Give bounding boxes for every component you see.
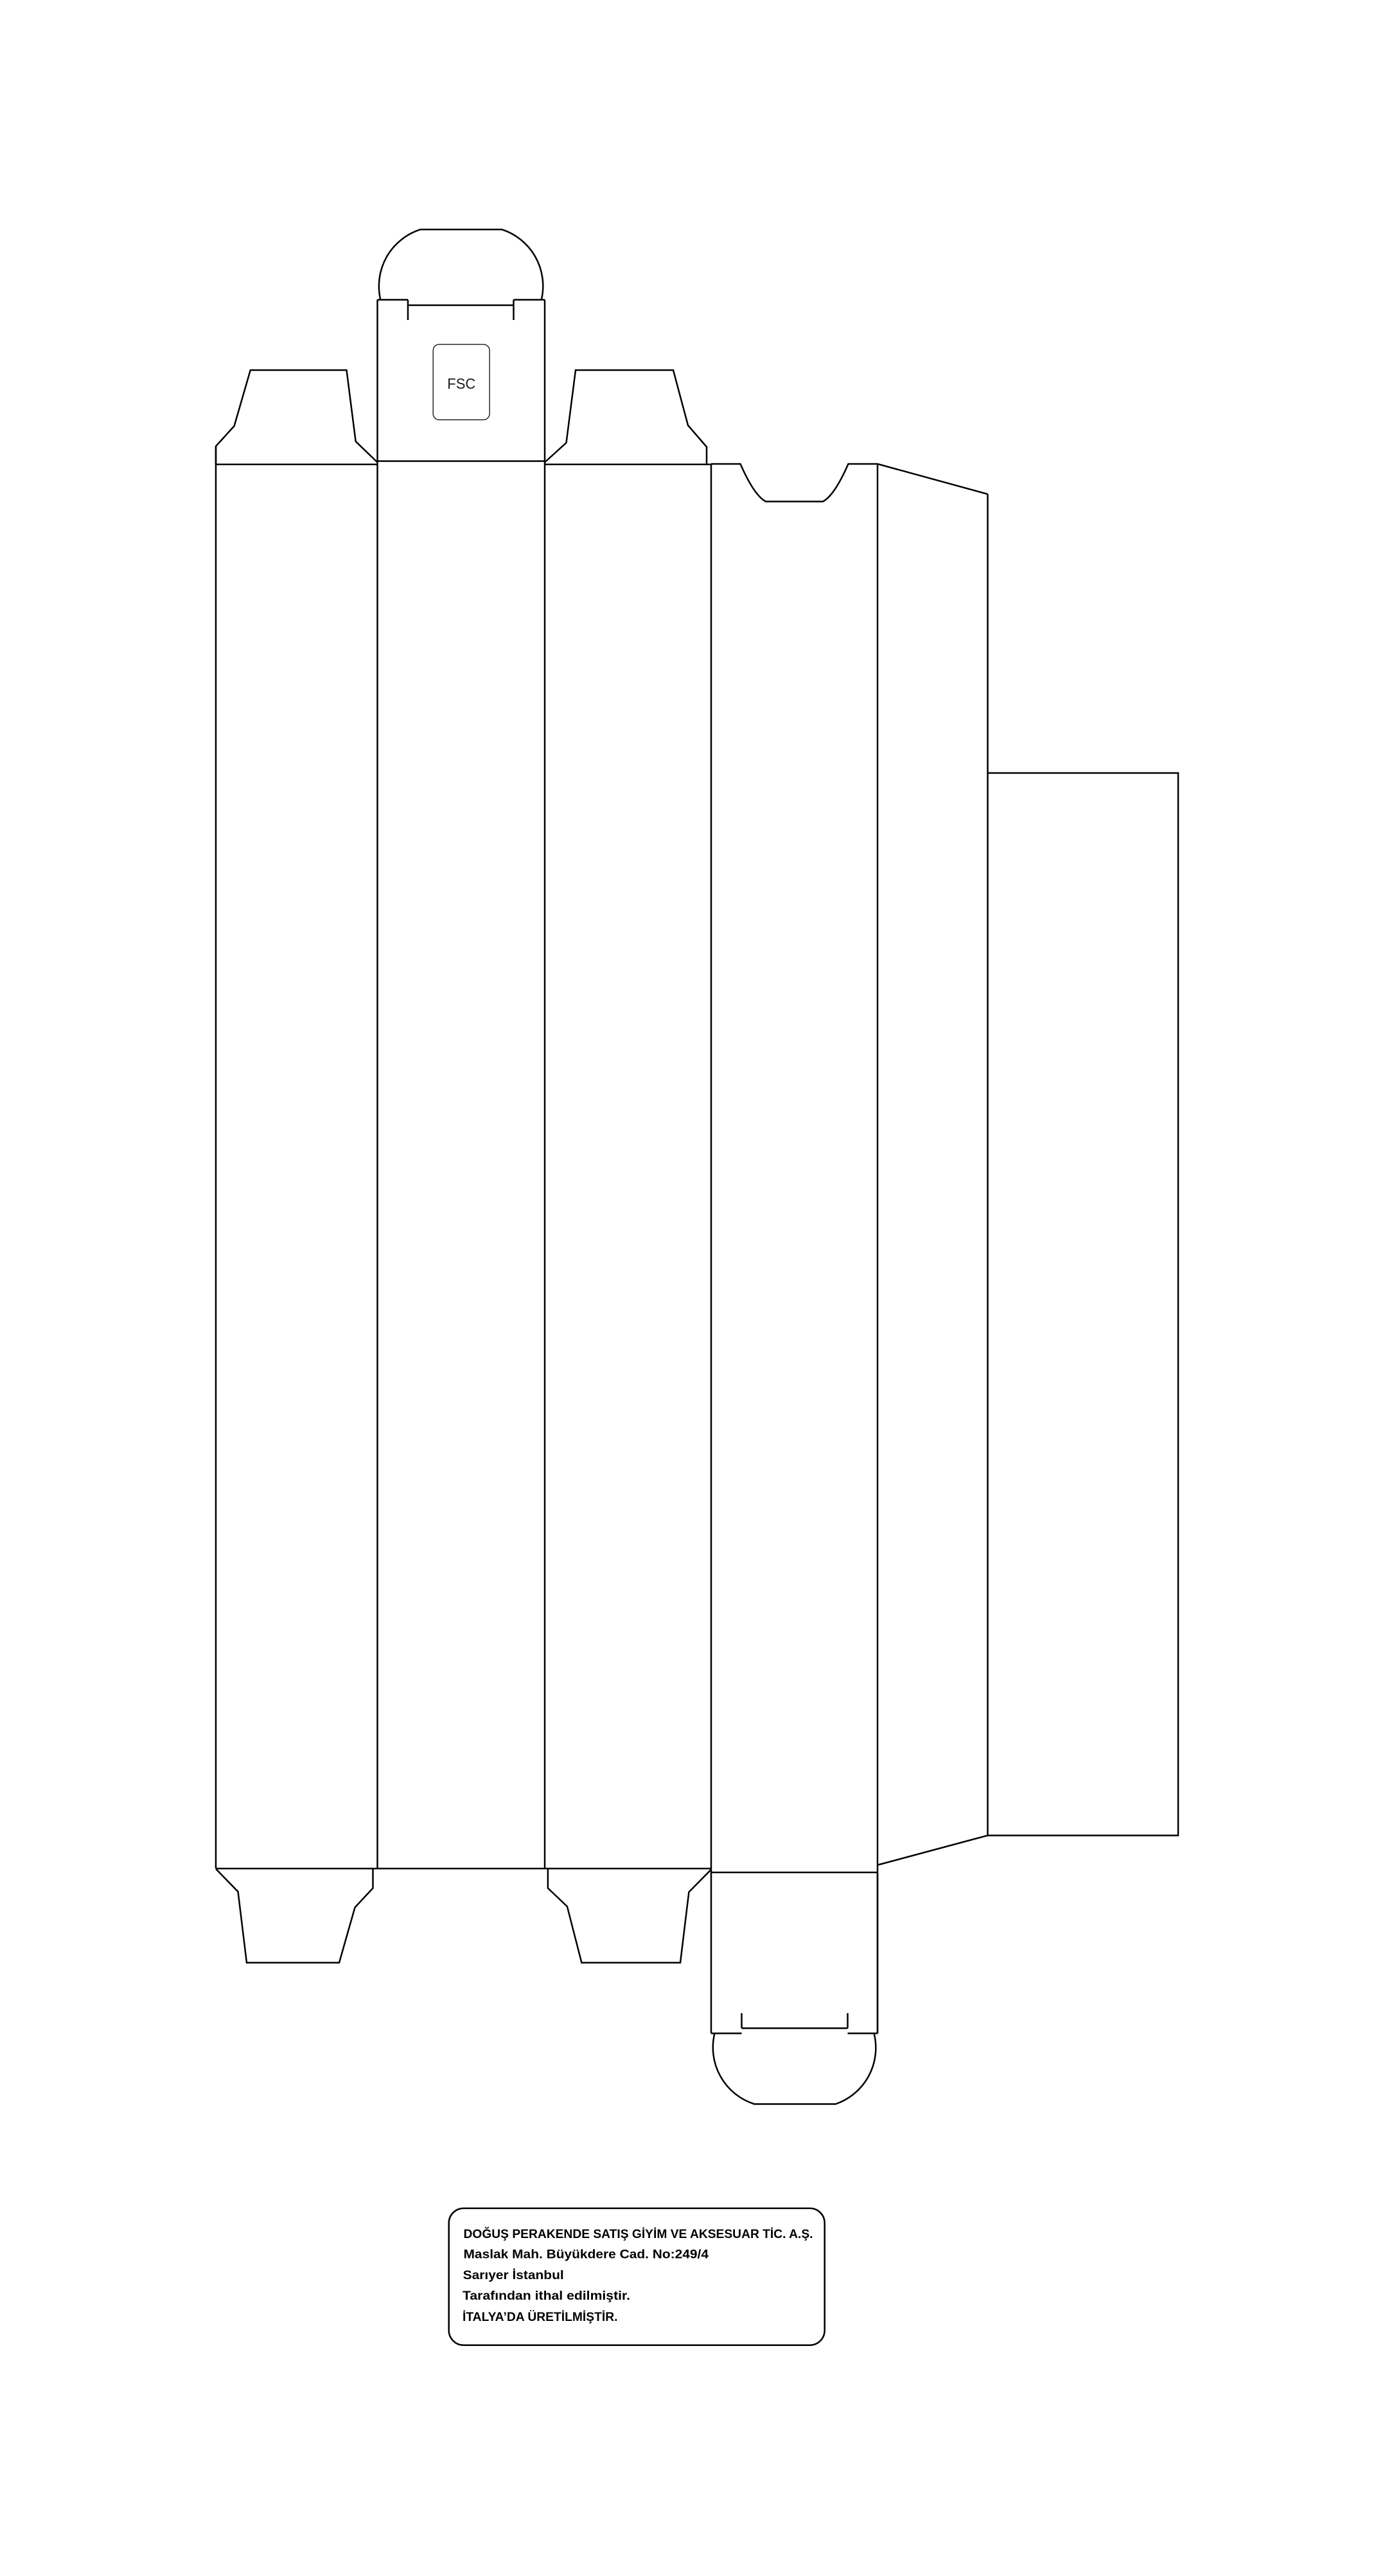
svg-text:İTALYA’DA ÜRETİLMİŞTİR.: İTALYA’DA ÜRETİLMİŞTİR. xyxy=(463,2309,618,2324)
svg-text:Tarafından ithal edilmiştir.: Tarafından ithal edilmiştir. xyxy=(463,2289,630,2303)
svg-text:DOĞUŞ PERAKENDE SATIŞ GİYİM VE: DOĞUŞ PERAKENDE SATIŞ GİYİM VE AKSESUAR … xyxy=(464,2226,813,2241)
svg-text:FSC: FSC xyxy=(447,375,475,392)
svg-text:Sarıyer İstanbul: Sarıyer İstanbul xyxy=(463,2268,564,2282)
svg-text:Maslak Mah. Büyükdere Cad. No:: Maslak Mah. Büyükdere Cad. No:249/4 xyxy=(464,2248,709,2262)
